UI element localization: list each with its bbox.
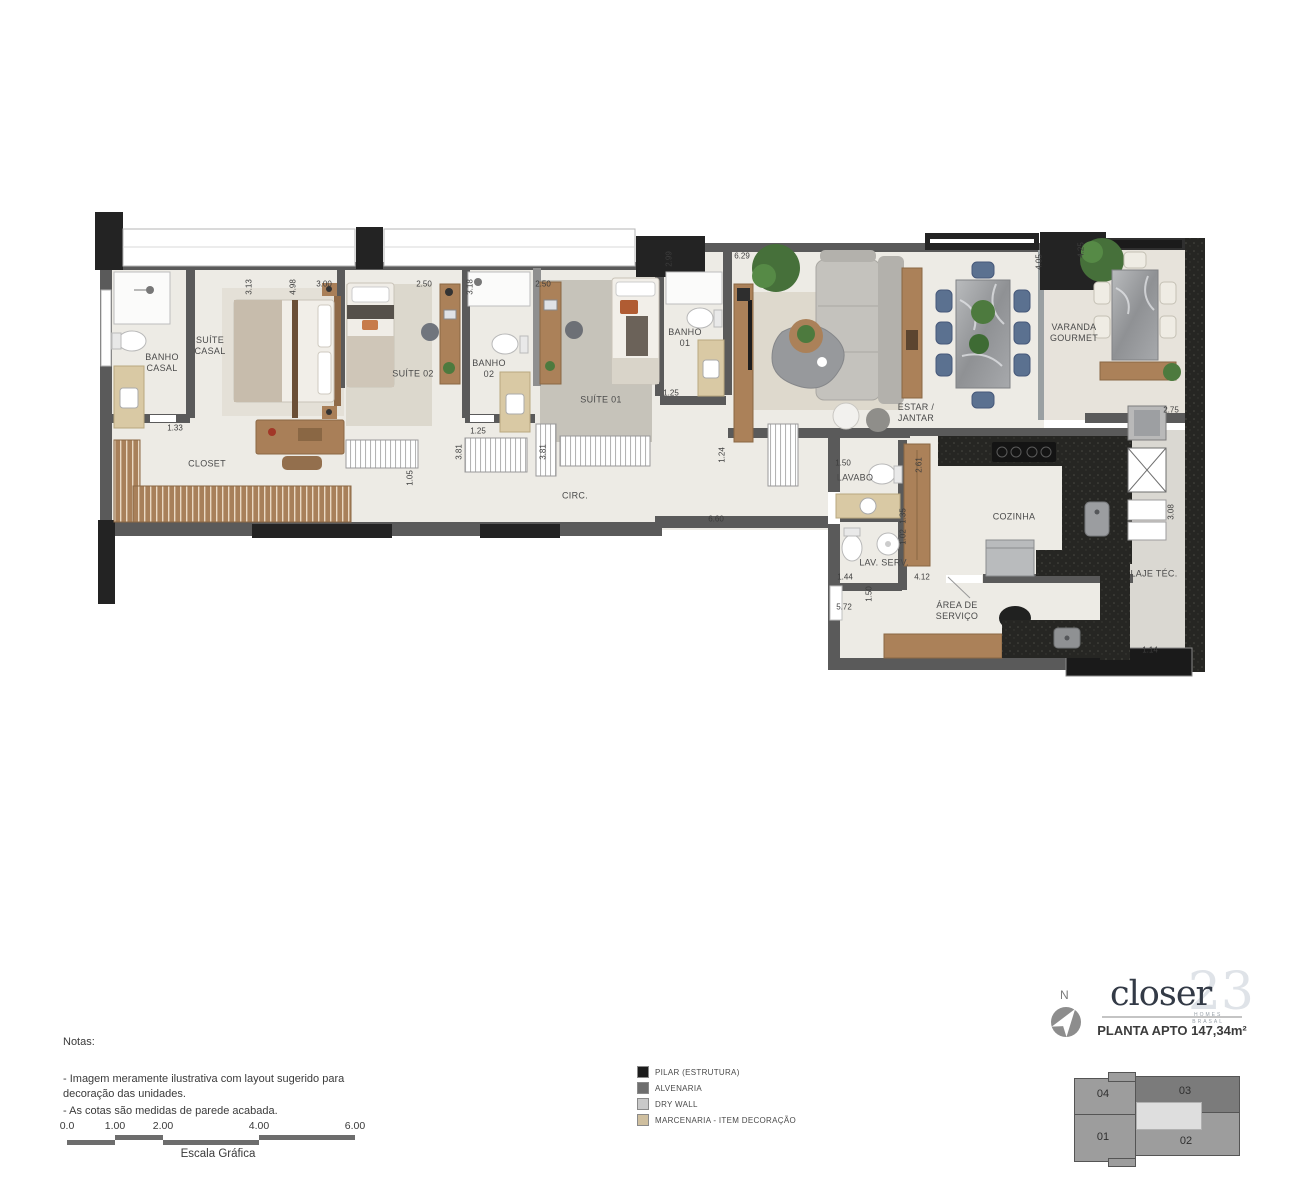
legend-swatch xyxy=(637,1082,649,1094)
legend-item: DRY WALL xyxy=(637,1098,857,1110)
keyplan-unit-label: 01 xyxy=(1097,1131,1109,1143)
legend-label: DRY WALL xyxy=(655,1100,698,1109)
north-arrow: N xyxy=(1046,988,1088,1048)
legend-label: PILAR (ESTRUTURA) xyxy=(655,1068,740,1077)
brand-logo: 23 closer HOMES BRASAL xyxy=(1100,972,1250,1020)
legend-item: ALVENARIA xyxy=(637,1082,857,1094)
scale-segment xyxy=(115,1135,163,1140)
laje-right-band xyxy=(1185,238,1205,672)
key-plan: 04030102 xyxy=(1072,1072,1246,1166)
legend-swatch xyxy=(637,1066,649,1078)
scale-tick-label: 4.00 xyxy=(249,1120,269,1132)
plan-title: PLANTA APTO 147,34m² xyxy=(1096,1023,1248,1038)
titleblock-divider xyxy=(1102,1016,1242,1018)
scale-segment xyxy=(259,1135,355,1140)
scale-tick-label: 2.00 xyxy=(153,1120,173,1132)
floorplan-sheet: BANHO CASALSUÍTE CASALCLOSETSUÍTE 02BANH… xyxy=(0,0,1299,1200)
keyplan-unit-label: 02 xyxy=(1180,1135,1192,1147)
notes-title: Notas: xyxy=(63,1036,393,1048)
legend-item: PILAR (ESTRUTURA) xyxy=(637,1066,857,1078)
keyplan-unit-label: 03 xyxy=(1179,1085,1191,1097)
scale-caption: Escala Gráfica xyxy=(153,1148,283,1160)
legend-swatch xyxy=(637,1114,649,1126)
keyplan-notch-bottom xyxy=(1108,1158,1136,1167)
keyplan-notch-top xyxy=(1108,1072,1136,1082)
legend-item: MARCENARIA - ITEM DECORAÇÃO xyxy=(637,1114,857,1126)
note-line: - Imagem meramente ilustrativa com layou… xyxy=(63,1072,393,1102)
legend-label: MARCENARIA - ITEM DECORAÇÃO xyxy=(655,1116,796,1125)
floor-plan-drawing xyxy=(0,0,1299,760)
legend: PILAR (ESTRUTURA)ALVENARIADRY WALLMARCEN… xyxy=(637,1066,857,1130)
shafts xyxy=(1128,406,1166,540)
scale-segment xyxy=(67,1140,115,1145)
note-line: - As cotas são medidas de parede acabada… xyxy=(63,1104,393,1119)
keyplan-unit-label: 04 xyxy=(1097,1088,1109,1100)
north-label: N xyxy=(1060,988,1069,1002)
scale-segment xyxy=(163,1140,259,1145)
keyplan-core xyxy=(1136,1102,1202,1130)
scale-tick-label: 0.0 xyxy=(60,1120,75,1132)
legend-label: ALVENARIA xyxy=(655,1084,702,1093)
logo-word: closer xyxy=(1110,974,1211,1014)
notes-block: Notas: - Imagem meramente ilustrativa co… xyxy=(63,1036,393,1121)
notes-lines: - Imagem meramente ilustrativa com layou… xyxy=(63,1072,393,1119)
scale-tick-label: 6.00 xyxy=(345,1120,365,1132)
legend-swatch xyxy=(637,1098,649,1110)
scale-tick-label: 1.00 xyxy=(105,1120,125,1132)
scale-bar: 0.01.002.004.006.00 Escala Gráfica xyxy=(63,1120,373,1165)
